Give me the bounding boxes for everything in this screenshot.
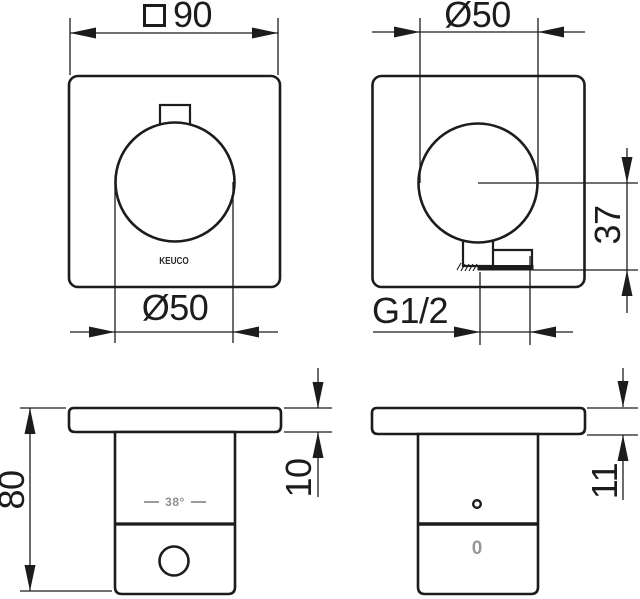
arrowhead-right bbox=[530, 327, 556, 338]
arrowhead-down bbox=[618, 381, 629, 407]
dimension-label-37: 37 bbox=[589, 175, 627, 275]
dimension-label-diameter-50-left: Ø50 bbox=[120, 289, 230, 327]
side-view-shutoff bbox=[372, 408, 585, 594]
dimension-value: 90 bbox=[173, 0, 212, 34]
arrowhead-right bbox=[233, 327, 259, 338]
arrowhead-down bbox=[313, 382, 324, 408]
drawing-linework bbox=[0, 0, 640, 599]
brand-logo: KEUCO bbox=[149, 256, 198, 267]
dimension-label-80: 80 bbox=[0, 440, 31, 540]
plate-outline bbox=[372, 408, 585, 434]
index-dot-outline bbox=[473, 500, 481, 508]
handle-body-outline bbox=[418, 434, 538, 594]
dimension-label-square-90: 90 bbox=[115, 0, 240, 34]
dimension-label-10: 10 bbox=[280, 428, 318, 528]
dimension-label-diameter-50-right: Ø50 bbox=[425, 0, 530, 34]
dash-left bbox=[144, 501, 159, 503]
technical-drawing: 90 Ø50 Ø50 G1/2 37 80 10 11 KEUCO 38° 0 bbox=[0, 0, 640, 599]
arrowhead-left bbox=[454, 327, 480, 338]
outlet-base-bar bbox=[478, 265, 534, 271]
dimension-label-11: 11 bbox=[586, 431, 624, 531]
square-symbol bbox=[143, 4, 166, 27]
temperature-value: 38° bbox=[165, 495, 185, 509]
temperature-marking: 38° bbox=[130, 495, 220, 509]
arrowhead-left bbox=[89, 327, 115, 338]
dash-right bbox=[191, 501, 206, 503]
front-view-shutoff bbox=[373, 76, 585, 287]
arrowhead-down bbox=[25, 565, 36, 591]
arrowhead-left bbox=[394, 27, 420, 38]
plate-outline bbox=[69, 408, 281, 432]
handle-button-outline bbox=[160, 547, 189, 576]
dimension-label-thread-g12: G1/2 bbox=[372, 292, 448, 330]
scale-zero-marking: 0 bbox=[462, 538, 492, 560]
arrowhead-right bbox=[252, 28, 278, 39]
knob-circle-outline bbox=[116, 123, 235, 242]
arrowhead-right bbox=[538, 27, 564, 38]
arrowhead-up bbox=[25, 408, 36, 434]
dimension-height-80 bbox=[20, 408, 112, 591]
arrowhead-left bbox=[70, 28, 96, 39]
